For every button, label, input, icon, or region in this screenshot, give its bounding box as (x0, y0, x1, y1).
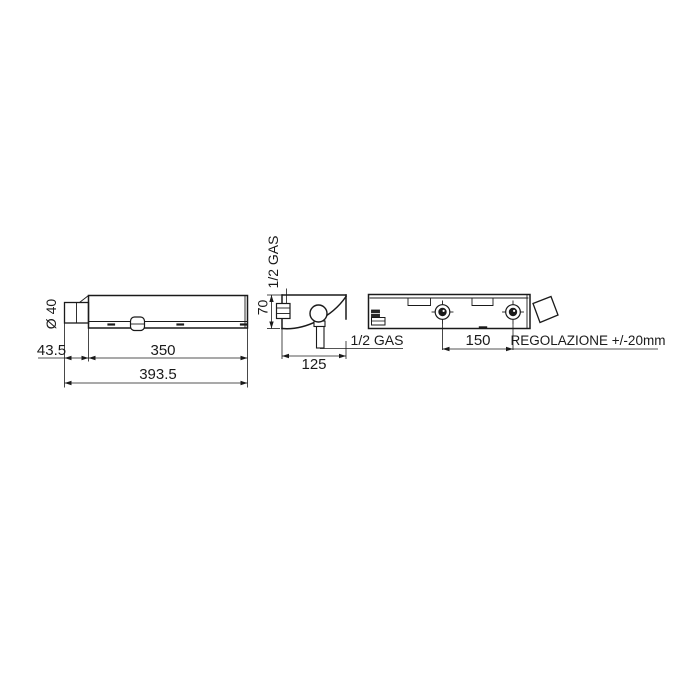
side-view (277, 295, 347, 348)
technical-drawing: Ø 40 43.5 350 393.5 1/2 GAS 70 125 1/2 G… (0, 0, 700, 700)
front-view (65, 296, 248, 331)
wall-bracket-detail (372, 310, 386, 325)
depth-dim: 125 (301, 356, 326, 373)
back-view (369, 295, 559, 329)
diameter-label: Ø 40 (43, 299, 59, 330)
control-knob (310, 305, 327, 322)
height-dim: 70 (254, 300, 270, 316)
inlet-fitting (277, 304, 291, 319)
adjustment-label: REGOLAZIONE +/-20mm (511, 333, 666, 348)
inlet-screw-left (432, 301, 453, 323)
sliding-bracket (533, 297, 558, 323)
top-connection-label: 1/2 GAS (265, 236, 281, 289)
outlet-connection-label: 1/2 GAS (351, 332, 404, 348)
total-length-dim: 393.5 (139, 366, 177, 383)
body-length-dim: 350 (150, 342, 175, 359)
inlet-screw-right (503, 301, 524, 323)
inlet-spacing-dim: 150 (465, 332, 490, 349)
outlet-pipe (314, 321, 325, 348)
mixer-body-front (89, 296, 248, 329)
spout-length-dim: 43.5 (37, 342, 66, 359)
drawing-canvas: Ø 40 43.5 350 393.5 1/2 GAS 70 125 1/2 G… (0, 0, 700, 700)
